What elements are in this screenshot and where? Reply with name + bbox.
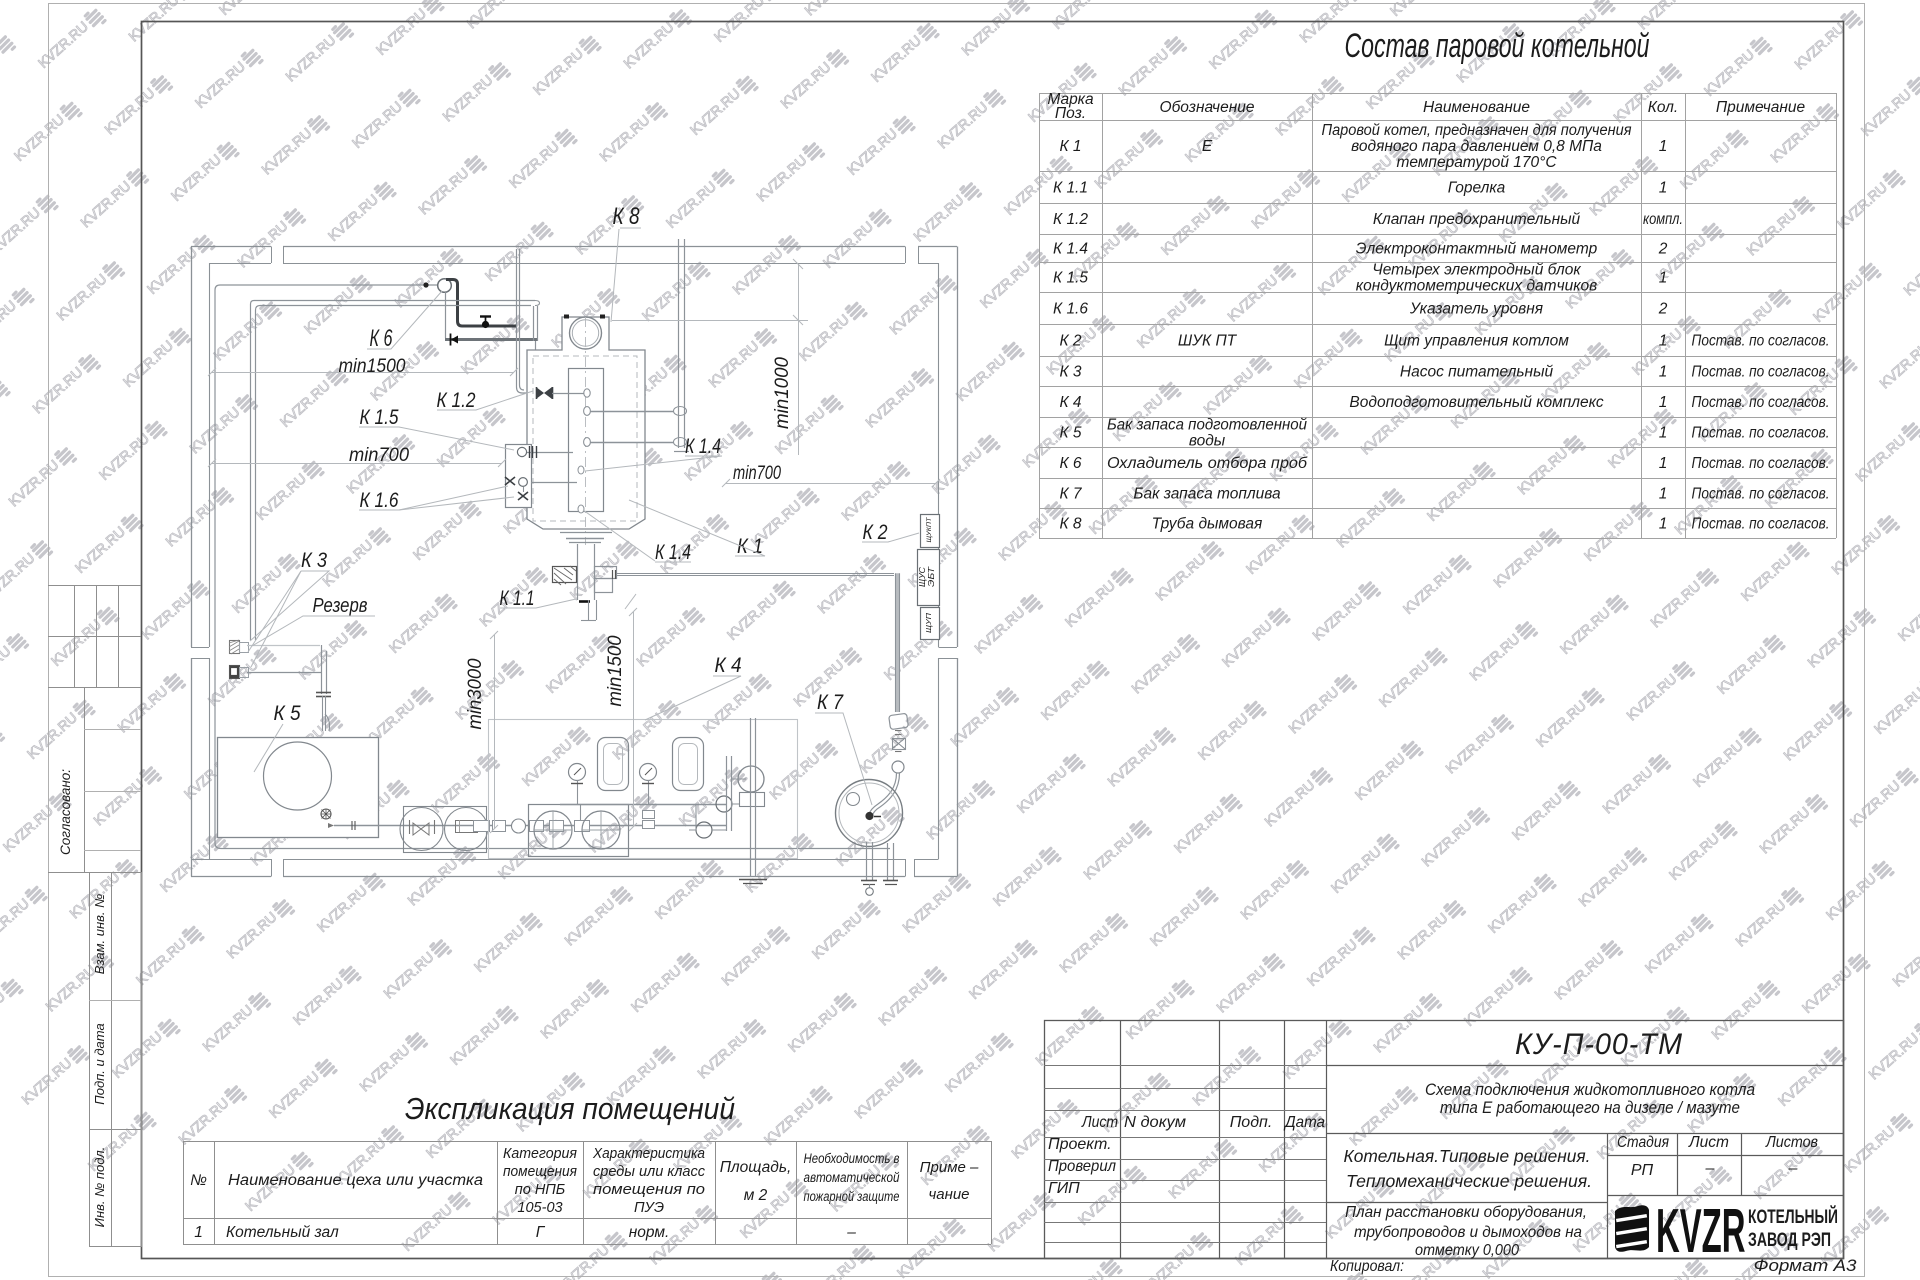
svg-text:Горелка: Горелка [1448, 180, 1506, 197]
svg-text:Проверил: Проверил [1048, 1158, 1116, 1175]
svg-text:Насос питательный: Насос питательный [1400, 364, 1554, 381]
svg-text:Клапан предохранительный: Клапан предохранительный [1373, 211, 1581, 228]
svg-text:норм.: норм. [629, 1224, 670, 1241]
svg-text:Площадь,: Площадь, [720, 1159, 792, 1176]
svg-text:min700: min700 [349, 445, 409, 466]
svg-text:ГИП: ГИП [1048, 1180, 1080, 1197]
svg-text:Категория: Категория [503, 1146, 577, 1162]
svg-text:Щит управления котлом: Щит управления котлом [1384, 333, 1569, 350]
svg-text:1: 1 [1659, 333, 1668, 350]
svg-text:К 1.6: К 1.6 [1053, 301, 1088, 318]
svg-text:Поз.: Поз. [1055, 105, 1086, 122]
svg-text:Схема подключения жидкотопливн: Схема подключения жидкотопливного котла [1425, 1080, 1755, 1099]
svg-text:К 1.1: К 1.1 [1053, 180, 1088, 197]
svg-text:1: 1 [1659, 516, 1668, 533]
svg-text:Бак запаса топлива: Бак запаса топлива [1133, 486, 1281, 503]
svg-text:N докум: N докум [1124, 1114, 1186, 1131]
svg-text:К 4: К 4 [1059, 394, 1081, 411]
svg-text:–: – [1705, 1160, 1715, 1177]
svg-text:105-03: 105-03 [517, 1200, 562, 1216]
svg-text:К 1.1: К 1.1 [500, 587, 535, 610]
svg-text:ШУК ПТ: ШУК ПТ [1178, 333, 1238, 350]
svg-text:К 8: К 8 [1059, 516, 1081, 533]
svg-text:помещения по: помещения по [593, 1182, 705, 1198]
svg-text:1: 1 [1659, 425, 1668, 442]
svg-text:Лист: Лист [1688, 1134, 1729, 1151]
svg-text:К 1.5: К 1.5 [1053, 270, 1088, 287]
svg-text:Водоподготовительный комплекс: Водоподготовительный комплекс [1349, 394, 1603, 411]
svg-text:–: – [846, 1224, 856, 1241]
svg-text:Тепломеханические решения.: Тепломеханические решения. [1346, 1171, 1592, 1191]
svg-text:К 4: К 4 [715, 654, 742, 677]
svg-text:min1000: min1000 [772, 357, 793, 429]
svg-text:Взам. инв. №: Взам. инв. № [92, 894, 107, 974]
svg-text:ПУЭ: ПУЭ [634, 1200, 664, 1216]
svg-text:ЭБТ: ЭБТ [927, 566, 936, 587]
svg-text:ЗАВОД РЭП: ЗАВОД РЭП [1748, 1230, 1831, 1251]
svg-text:ЩУКПТ: ЩУКПТ [927, 516, 933, 543]
svg-text:1: 1 [1659, 270, 1668, 287]
svg-text:среды или класс: среды или класс [593, 1164, 706, 1180]
svg-text:К 1.4: К 1.4 [1053, 241, 1088, 258]
svg-text:Четырех электродный блок: Четырех электродный блок [1372, 262, 1581, 279]
svg-text:Постав. по согласов.: Постав. по согласов. [1692, 455, 1830, 472]
svg-text:Е: Е [1202, 138, 1213, 155]
svg-text:Постав. по согласов.: Постав. по согласов. [1692, 486, 1830, 503]
svg-text:Постав. по согласов.: Постав. по согласов. [1692, 425, 1830, 442]
svg-text:кондуктометрических датчиков: кондуктометрических датчиков [1356, 278, 1598, 295]
svg-text:Примечание: Примечание [1716, 99, 1806, 116]
svg-text:Приме –: Приме – [920, 1159, 979, 1176]
svg-text:ЩУС: ЩУС [918, 567, 927, 587]
svg-text:Подп.: Подп. [1230, 1114, 1273, 1131]
svg-text:1: 1 [1659, 486, 1668, 503]
svg-text:Проект.: Проект. [1048, 1136, 1112, 1153]
svg-text:К 5: К 5 [1059, 425, 1081, 442]
svg-text:Котельная.Типовые решения.: Котельная.Типовые решения. [1344, 1146, 1591, 1166]
svg-text:К 1.5: К 1.5 [360, 406, 399, 429]
svg-text:Резерв: Резерв [313, 595, 368, 617]
svg-text:пожарной защите: пожарной защите [804, 1189, 900, 1204]
svg-text:Экспликация помещений: Экспликация помещений [405, 1091, 735, 1126]
svg-text:Подп. и дата: Подп. и дата [92, 1023, 107, 1104]
svg-text:План расстановки оборудования,: План расстановки оборудования, [1345, 1204, 1587, 1221]
svg-text:водяного пара давлением 0,8 МП: водяного пара давлением 0,8 МПа [1351, 138, 1602, 155]
svg-text:Охладитель отбора проб: Охладитель отбора проб [1107, 455, 1308, 472]
svg-text:чание: чание [928, 1186, 969, 1203]
svg-text:К 1.4: К 1.4 [655, 541, 691, 564]
svg-text:KVZR: KVZR [1656, 1196, 1745, 1266]
svg-text:Инв. № подл.: Инв. № подл. [92, 1147, 107, 1228]
svg-text:Наименование: Наименование [1423, 99, 1530, 116]
svg-text:Стадия: Стадия [1617, 1134, 1669, 1151]
svg-text:К 7: К 7 [817, 691, 844, 714]
svg-text:К 2: К 2 [863, 521, 888, 544]
svg-text:Состав паровой котельной: Состав паровой котельной [1345, 27, 1650, 65]
svg-text:воды: воды [1189, 433, 1226, 450]
svg-text:1: 1 [1659, 180, 1668, 197]
svg-text:К 6: К 6 [1059, 455, 1081, 472]
svg-text:Кол.: Кол. [1648, 99, 1678, 116]
svg-text:К 6: К 6 [370, 325, 393, 352]
svg-text:отметку 0,000: отметку 0,000 [1415, 1242, 1519, 1259]
svg-text:2: 2 [1658, 241, 1668, 258]
svg-text:min3000: min3000 [465, 658, 486, 729]
svg-text:К 3: К 3 [301, 549, 327, 572]
svg-text:Постав. по согласов.: Постав. по согласов. [1692, 394, 1830, 411]
svg-text:К 8: К 8 [613, 203, 641, 230]
svg-text:РП: РП [1631, 1162, 1654, 1179]
svg-text:К 2: К 2 [1059, 333, 1081, 350]
svg-text:Лист: Лист [1081, 1114, 1118, 1131]
svg-text:1: 1 [194, 1224, 203, 1241]
svg-text:Обозначение: Обозначение [1160, 99, 1255, 116]
svg-text:Наименование цеха или участка: Наименование цеха или участка [228, 1172, 483, 1189]
svg-text:Электроконтактный манометр: Электроконтактный манометр [1356, 241, 1598, 258]
svg-text:1: 1 [1659, 364, 1668, 381]
svg-text:Бак запаса подготовленной: Бак запаса подготовленной [1107, 417, 1307, 434]
svg-text:Котельный зал: Котельный зал [226, 1224, 339, 1241]
svg-text:№: № [190, 1172, 207, 1189]
svg-text:Паровой котел, предназначен дл: Паровой котел, предназначен для получени… [1322, 122, 1632, 139]
svg-text:Дата: Дата [1283, 1114, 1325, 1131]
svg-text:Г: Г [536, 1224, 546, 1241]
svg-text:Копировал:: Копировал: [1330, 1258, 1404, 1275]
svg-text:1: 1 [1659, 138, 1668, 155]
svg-text:КОТЕЛЬНЫЙ: КОТЕЛЬНЫЙ [1748, 1206, 1838, 1228]
svg-text:Необходимость в: Необходимость в [804, 1151, 900, 1166]
svg-text:1: 1 [1659, 455, 1668, 472]
svg-text:min1500: min1500 [339, 356, 406, 377]
svg-text:К 1.6: К 1.6 [360, 489, 399, 512]
svg-text:Характеристика: Характеристика [592, 1146, 705, 1162]
svg-text:типа Е работающего на дизеле /: типа Е работающего на дизеле / мазуте [1440, 1098, 1740, 1117]
svg-text:К 1: К 1 [1059, 138, 1081, 155]
svg-text:м 2: м 2 [744, 1187, 768, 1204]
svg-text:Постав. по согласов.: Постав. по согласов. [1692, 333, 1830, 350]
svg-text:min700: min700 [733, 463, 781, 484]
svg-text:Указатель уровня: Указатель уровня [1409, 301, 1543, 318]
svg-text:КУ-П-00-ТМ: КУ-П-00-ТМ [1515, 1028, 1683, 1061]
svg-text:К 1.2: К 1.2 [1053, 211, 1088, 228]
svg-text:К 3: К 3 [1059, 364, 1081, 381]
svg-text:К 7: К 7 [1059, 486, 1082, 503]
svg-text:температурой 170°С: температурой 170°С [1396, 154, 1557, 171]
svg-text:2: 2 [1658, 301, 1668, 318]
svg-text:Постав. по согласов.: Постав. по согласов. [1692, 364, 1830, 381]
svg-text:Формат А3: Формат А3 [1754, 1257, 1858, 1275]
svg-text:по НПБ: по НПБ [515, 1182, 566, 1198]
svg-text:компл.: компл. [1643, 211, 1683, 228]
svg-text:помещения: помещения [503, 1164, 577, 1180]
svg-text:К 1.2: К 1.2 [437, 389, 476, 412]
svg-text:трубопроводов и дымоходов на: трубопроводов и дымоходов на [1354, 1224, 1582, 1241]
svg-text:ЩУП: ЩУП [924, 612, 933, 633]
svg-text:1: 1 [1659, 394, 1668, 411]
svg-text:Постав. по согласов.: Постав. по согласов. [1692, 516, 1830, 533]
svg-text:К 5: К 5 [274, 702, 301, 725]
svg-text:Согласовано:: Согласовано: [58, 769, 73, 855]
svg-text:–: – [1788, 1160, 1798, 1177]
svg-text:К 1.4: К 1.4 [685, 435, 721, 458]
svg-text:min1500: min1500 [605, 635, 626, 706]
svg-text:Труба дымовая: Труба дымовая [1152, 516, 1263, 533]
svg-text:Листов: Листов [1765, 1134, 1818, 1151]
svg-text:автоматической: автоматической [804, 1170, 900, 1185]
